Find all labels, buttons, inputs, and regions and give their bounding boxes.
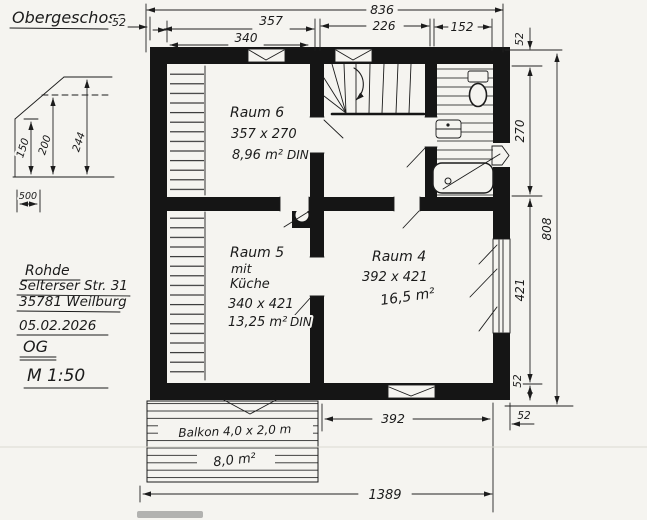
profile-height-244: 244 — [70, 131, 88, 154]
drawing-title: Obergeschoss — [10, 8, 125, 29]
raum6-size: 357 x 270 — [231, 127, 297, 142]
raum5-norm: DIN — [290, 315, 312, 329]
city: 35781 Weilburg — [19, 294, 127, 310]
dim-226: 226 — [373, 19, 396, 33]
wall-raum5-raum4 — [310, 211, 324, 383]
profile-height-200: 200 — [36, 133, 54, 156]
roof-profile-sketch: 150 200 244 500 — [13, 77, 114, 212]
dim-52-right-bottom: 52 — [512, 374, 524, 388]
raum6-name: Raum 6 — [230, 105, 284, 121]
raum4-area: 16,5 m² — [379, 285, 436, 309]
bath-wall-opening — [491, 143, 510, 167]
profile-width-500: 500 — [19, 191, 37, 202]
bathroom — [433, 65, 500, 196]
raum5-mit: mit — [231, 261, 253, 276]
dim-152: 152 — [451, 20, 474, 34]
dim-1389: 1389 — [368, 488, 401, 503]
date: 05.02.2026 — [19, 318, 96, 334]
scanned-floorplan-page: Obergeschoss 150 200 244 500 Rohde Selte… — [0, 0, 647, 520]
balcony: Balkon 4,0 x 2,0 m 8,0 m² — [147, 400, 318, 482]
stair-direction-arrow-icon — [354, 68, 363, 100]
dim-top: 836 52 357 340 226 152 — [112, 2, 503, 52]
room-raum4-label: Raum 4 392 x 421 16,5 m² — [362, 249, 436, 309]
window-bottom-raum4 — [388, 385, 435, 398]
floorplan-drawing: Obergeschoss 150 200 244 500 Rohde Selte… — [0, 0, 647, 520]
profile-height-150: 150 — [14, 136, 32, 159]
stairs — [324, 64, 424, 114]
scale-label: M 1:50 — [27, 366, 85, 386]
street: Selterser Str. 31 — [19, 278, 128, 294]
raum5-area: 13,25 m² — [228, 315, 287, 330]
door-raum4 — [394, 197, 420, 228]
dim-357: 357 — [259, 13, 283, 28]
raum5-name: Raum 5 — [230, 245, 284, 261]
sink-icon — [436, 120, 461, 138]
window-top-2 — [335, 49, 372, 62]
dim-421: 421 — [513, 279, 527, 302]
toilet-icon — [468, 71, 488, 107]
dim-340: 340 — [235, 31, 258, 45]
roof-slope-hatching — [170, 66, 205, 380]
raum5-kueche: Küche — [230, 277, 270, 292]
window-right-raum4 — [470, 239, 510, 333]
dim-270: 270 — [513, 119, 527, 142]
raum4-name: Raum 4 — [372, 249, 426, 265]
raum6-area: 8,96 m² — [232, 148, 283, 163]
page-title: Obergeschoss — [12, 8, 125, 27]
dim-52-right-top: 52 — [514, 32, 526, 46]
scan-smudge — [137, 511, 203, 518]
dim-836: 836 — [370, 2, 394, 17]
scan-artifacts — [0, 447, 647, 518]
client-name: Rohde — [25, 263, 70, 279]
window-top-1 — [248, 49, 285, 62]
room-raum5-label: Raum 5 mit Küche 340 x 421 13,25 m² DIN — [228, 245, 312, 330]
room-raum6-label: Raum 6 357 x 270 8,96 m² DIN — [230, 105, 309, 163]
raum6-norm: DIN — [287, 148, 309, 162]
door-raum6 — [310, 117, 343, 153]
raum5-size: 340 x 421 — [228, 297, 294, 312]
wall-mid — [167, 197, 493, 211]
dim-52-right-out: 52 — [517, 410, 531, 422]
dim-392: 392 — [381, 411, 405, 426]
info-block: Rohde Selterser Str. 31 35781 Weilburg 0… — [17, 263, 130, 388]
floor-abbrev: OG — [23, 337, 48, 356]
raum4-size: 392 x 421 — [362, 270, 428, 285]
dim-52-topleft: 52 — [112, 16, 126, 29]
dim-808: 808 — [540, 217, 554, 240]
